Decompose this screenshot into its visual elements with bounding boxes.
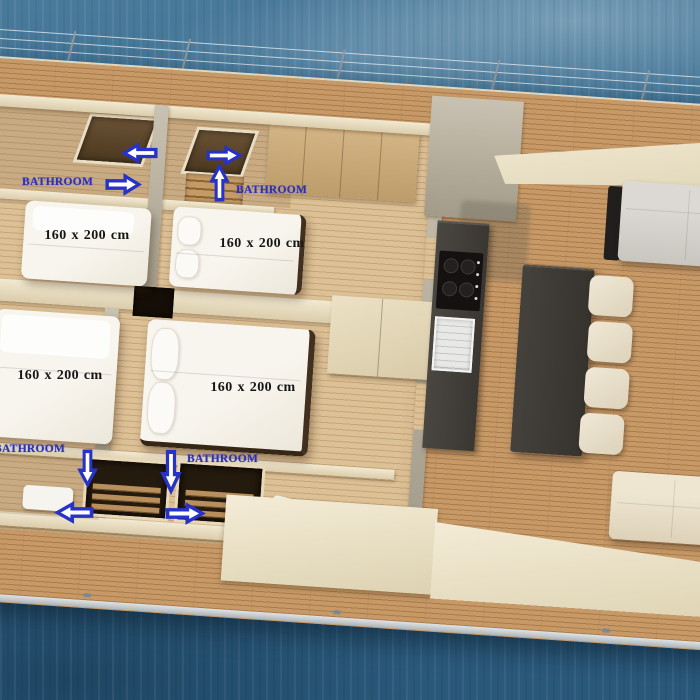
bed-size-label-3: 160 x 200 cm: [0, 368, 135, 384]
arrow-right-icon: [164, 502, 206, 525]
arrow-down-icon: [160, 448, 182, 495]
bed-size-label-4: 160 x 200 cm: [178, 380, 328, 396]
bathroom-label-1: BATHROOM: [22, 176, 93, 188]
bed-size-label-1: 160 x 200 cm: [12, 228, 162, 244]
arrow-left-icon: [54, 501, 95, 524]
annotation-overlay: BATHROOM BATHROOM BATHROOM BATHROOM 160 …: [0, 0, 700, 700]
bed-size-label-2: 160 x 200 cm: [187, 236, 337, 252]
arrow-right-icon: [104, 173, 142, 196]
arrow-left-icon: [121, 142, 159, 164]
arrow-up-icon: [209, 163, 230, 203]
yacht-floorplan-render: BATHROOM BATHROOM BATHROOM BATHROOM 160 …: [0, 0, 700, 700]
arrow-down-icon: [77, 448, 98, 488]
bathroom-label-4: BATHROOM: [187, 453, 258, 465]
bathroom-label-2: BATHROOM: [236, 184, 307, 196]
bathroom-label-3: BATHROOM: [0, 443, 65, 455]
